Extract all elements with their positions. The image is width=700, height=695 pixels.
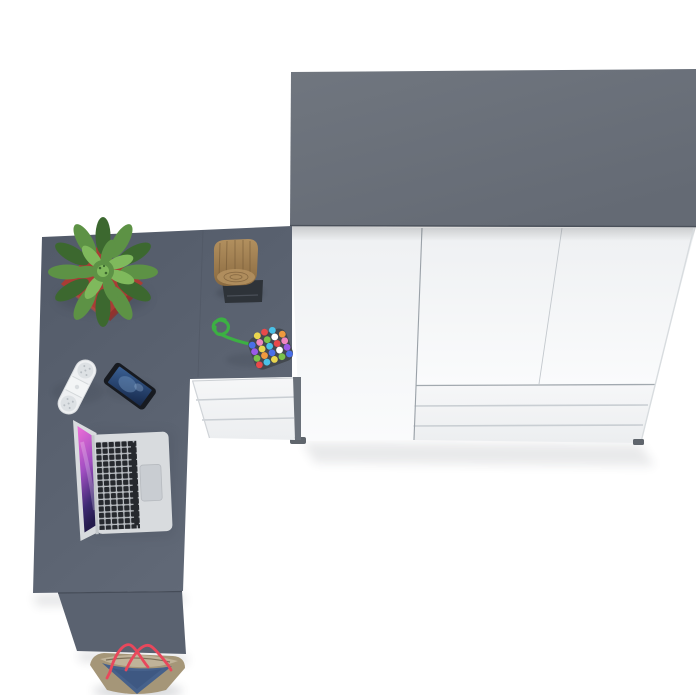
wardrobe-drawer-block xyxy=(413,384,655,443)
wardrobe-top-shade xyxy=(291,226,696,241)
log-end-grain xyxy=(217,269,255,285)
wardrobe-drawer-gap-2 xyxy=(414,425,644,426)
wardrobe-foot-right xyxy=(633,439,644,445)
wardrobe-door-left xyxy=(291,226,422,441)
wardrobe-floor-shadow xyxy=(302,442,655,466)
desk-end-panel xyxy=(58,591,186,654)
laptop-trackpad xyxy=(140,464,163,501)
scene-canvas xyxy=(0,0,700,695)
wardrobe xyxy=(281,69,696,445)
log-stool xyxy=(214,239,264,303)
product-render xyxy=(0,0,700,695)
wardrobe-door-right xyxy=(539,227,696,384)
wardrobe-drawer-gap-1 xyxy=(415,405,649,406)
laptop xyxy=(73,420,175,541)
wardrobe-door-middle xyxy=(416,228,562,385)
wardrobe-top-panel xyxy=(290,69,696,227)
